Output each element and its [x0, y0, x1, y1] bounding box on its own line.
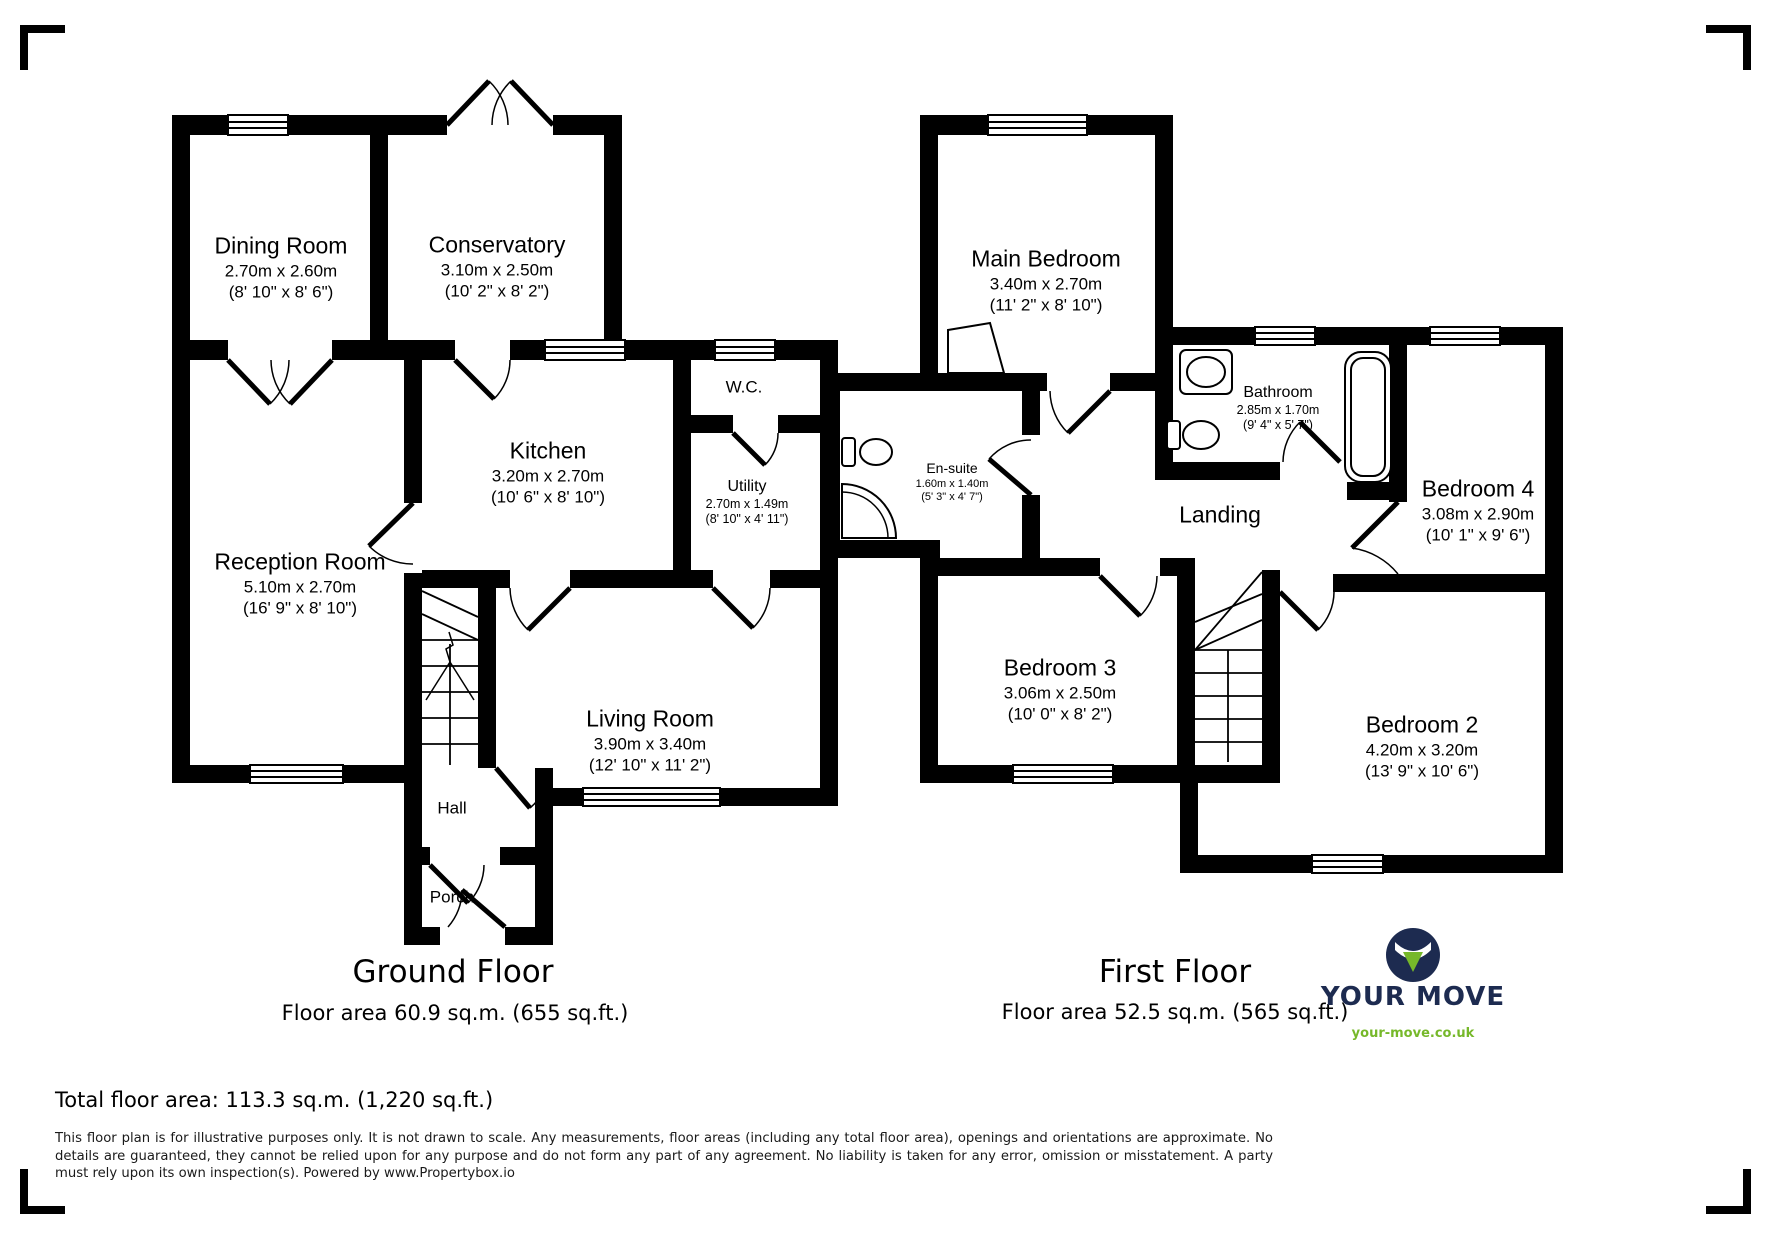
first-floor-stairs [1195, 572, 1262, 762]
ground-floor-area: Floor area 60.9 sq.m. (655 sq.ft.) [282, 1001, 629, 1025]
room-label-utility: Utility 2.70m x 1.49m (8' 10" x 4' 11") [706, 477, 789, 527]
window-dining [228, 115, 288, 135]
door-conservatory-french [447, 81, 553, 125]
room-label-bedroom2: Bedroom 2 4.20m x 3.20m (13' 9" x 10' 6"… [1365, 710, 1479, 781]
room-label-dining: Dining Room 2.70m x 2.60m (8' 10" x 8' 6… [215, 231, 348, 302]
door-utility [713, 588, 770, 628]
door-wc [733, 433, 778, 465]
bathtub [1345, 352, 1391, 482]
window-bedroom4 [1430, 327, 1500, 345]
door-bedroom2 [1280, 592, 1334, 630]
room-label-bedroom3: Bedroom 3 3.06m x 2.50m (10' 0" x 8' 2") [1004, 653, 1117, 724]
door-conservatory-kitchen [455, 360, 510, 399]
ground-floor-title: Ground Floor [352, 954, 553, 990]
window-main-bedroom [988, 115, 1087, 135]
floorplan-page: { "ground_floor": { "title": "Ground Flo… [0, 0, 1771, 1239]
door-bedroom3 [1100, 576, 1157, 616]
ground-floor-stairs [422, 591, 478, 765]
window-living [583, 788, 720, 806]
door-dining-double [228, 360, 332, 404]
your-move-brand-text: YOUR MOVE [1321, 982, 1505, 1012]
room-label-porch: Porch [430, 886, 474, 907]
room-label-landing: Landing [1179, 501, 1261, 530]
window-bathroom [1255, 327, 1315, 345]
window-reception [250, 765, 343, 783]
door-bedroom4 [1352, 502, 1398, 574]
bathroom-sink [1180, 350, 1232, 394]
corner-marks [20, 25, 1751, 1214]
room-label-conservatory: Conservatory 3.10m x 2.50m (10' 2" x 8' … [429, 230, 566, 301]
room-label-reception: Reception Room 5.10m x 2.70m (16' 9" x 8… [214, 547, 385, 618]
room-label-bedroom4: Bedroom 4 3.08m x 2.90m (10' 1" x 9' 6") [1422, 474, 1535, 545]
door-kitchen-living [510, 588, 570, 630]
your-move-logo-icon [1386, 928, 1440, 982]
room-label-main-bedroom: Main Bedroom 3.40m x 2.70m (11' 2" x 8' … [971, 244, 1121, 315]
floorplan-drawing [0, 0, 1771, 1239]
door-main-bedroom [1050, 391, 1110, 433]
room-label-living: Living Room 3.90m x 3.40m (12' 10" x 11'… [586, 704, 714, 775]
window-bedroom3 [1013, 765, 1113, 783]
ensuite-shower [842, 484, 896, 538]
total-floor-area: Total floor area: 113.3 sq.m. (1,220 sq.… [55, 1088, 493, 1112]
room-label-bathroom: Bathroom 2.85m x 1.70m (9' 4" x 5' 7") [1237, 383, 1320, 433]
bathroom-toilet [1167, 421, 1219, 449]
wardrobe-main-bedroom [948, 323, 1004, 373]
window-wc [715, 340, 775, 360]
room-label-kitchen: Kitchen 3.20m x 2.70m (10' 6" x 8' 10") [491, 436, 605, 507]
window-kitchen [545, 340, 625, 360]
your-move-website: your-move.co.uk [1352, 1026, 1475, 1041]
room-label-wc: W.C. [726, 376, 763, 397]
disclaimer-text: This floor plan is for illustrative purp… [55, 1130, 1273, 1183]
window-bedroom2 [1312, 855, 1383, 873]
first-floor-title: First Floor [1099, 954, 1251, 990]
door-ensuite [989, 440, 1031, 495]
first-floor-area: Floor area 52.5 sq.m. (565 sq.ft.) [1002, 1000, 1349, 1024]
room-label-ensuite: En-suite 1.60m x 1.40m (5' 3" x 4' 7") [916, 460, 989, 504]
room-label-hall: Hall [437, 797, 466, 818]
ensuite-toilet [842, 438, 892, 466]
